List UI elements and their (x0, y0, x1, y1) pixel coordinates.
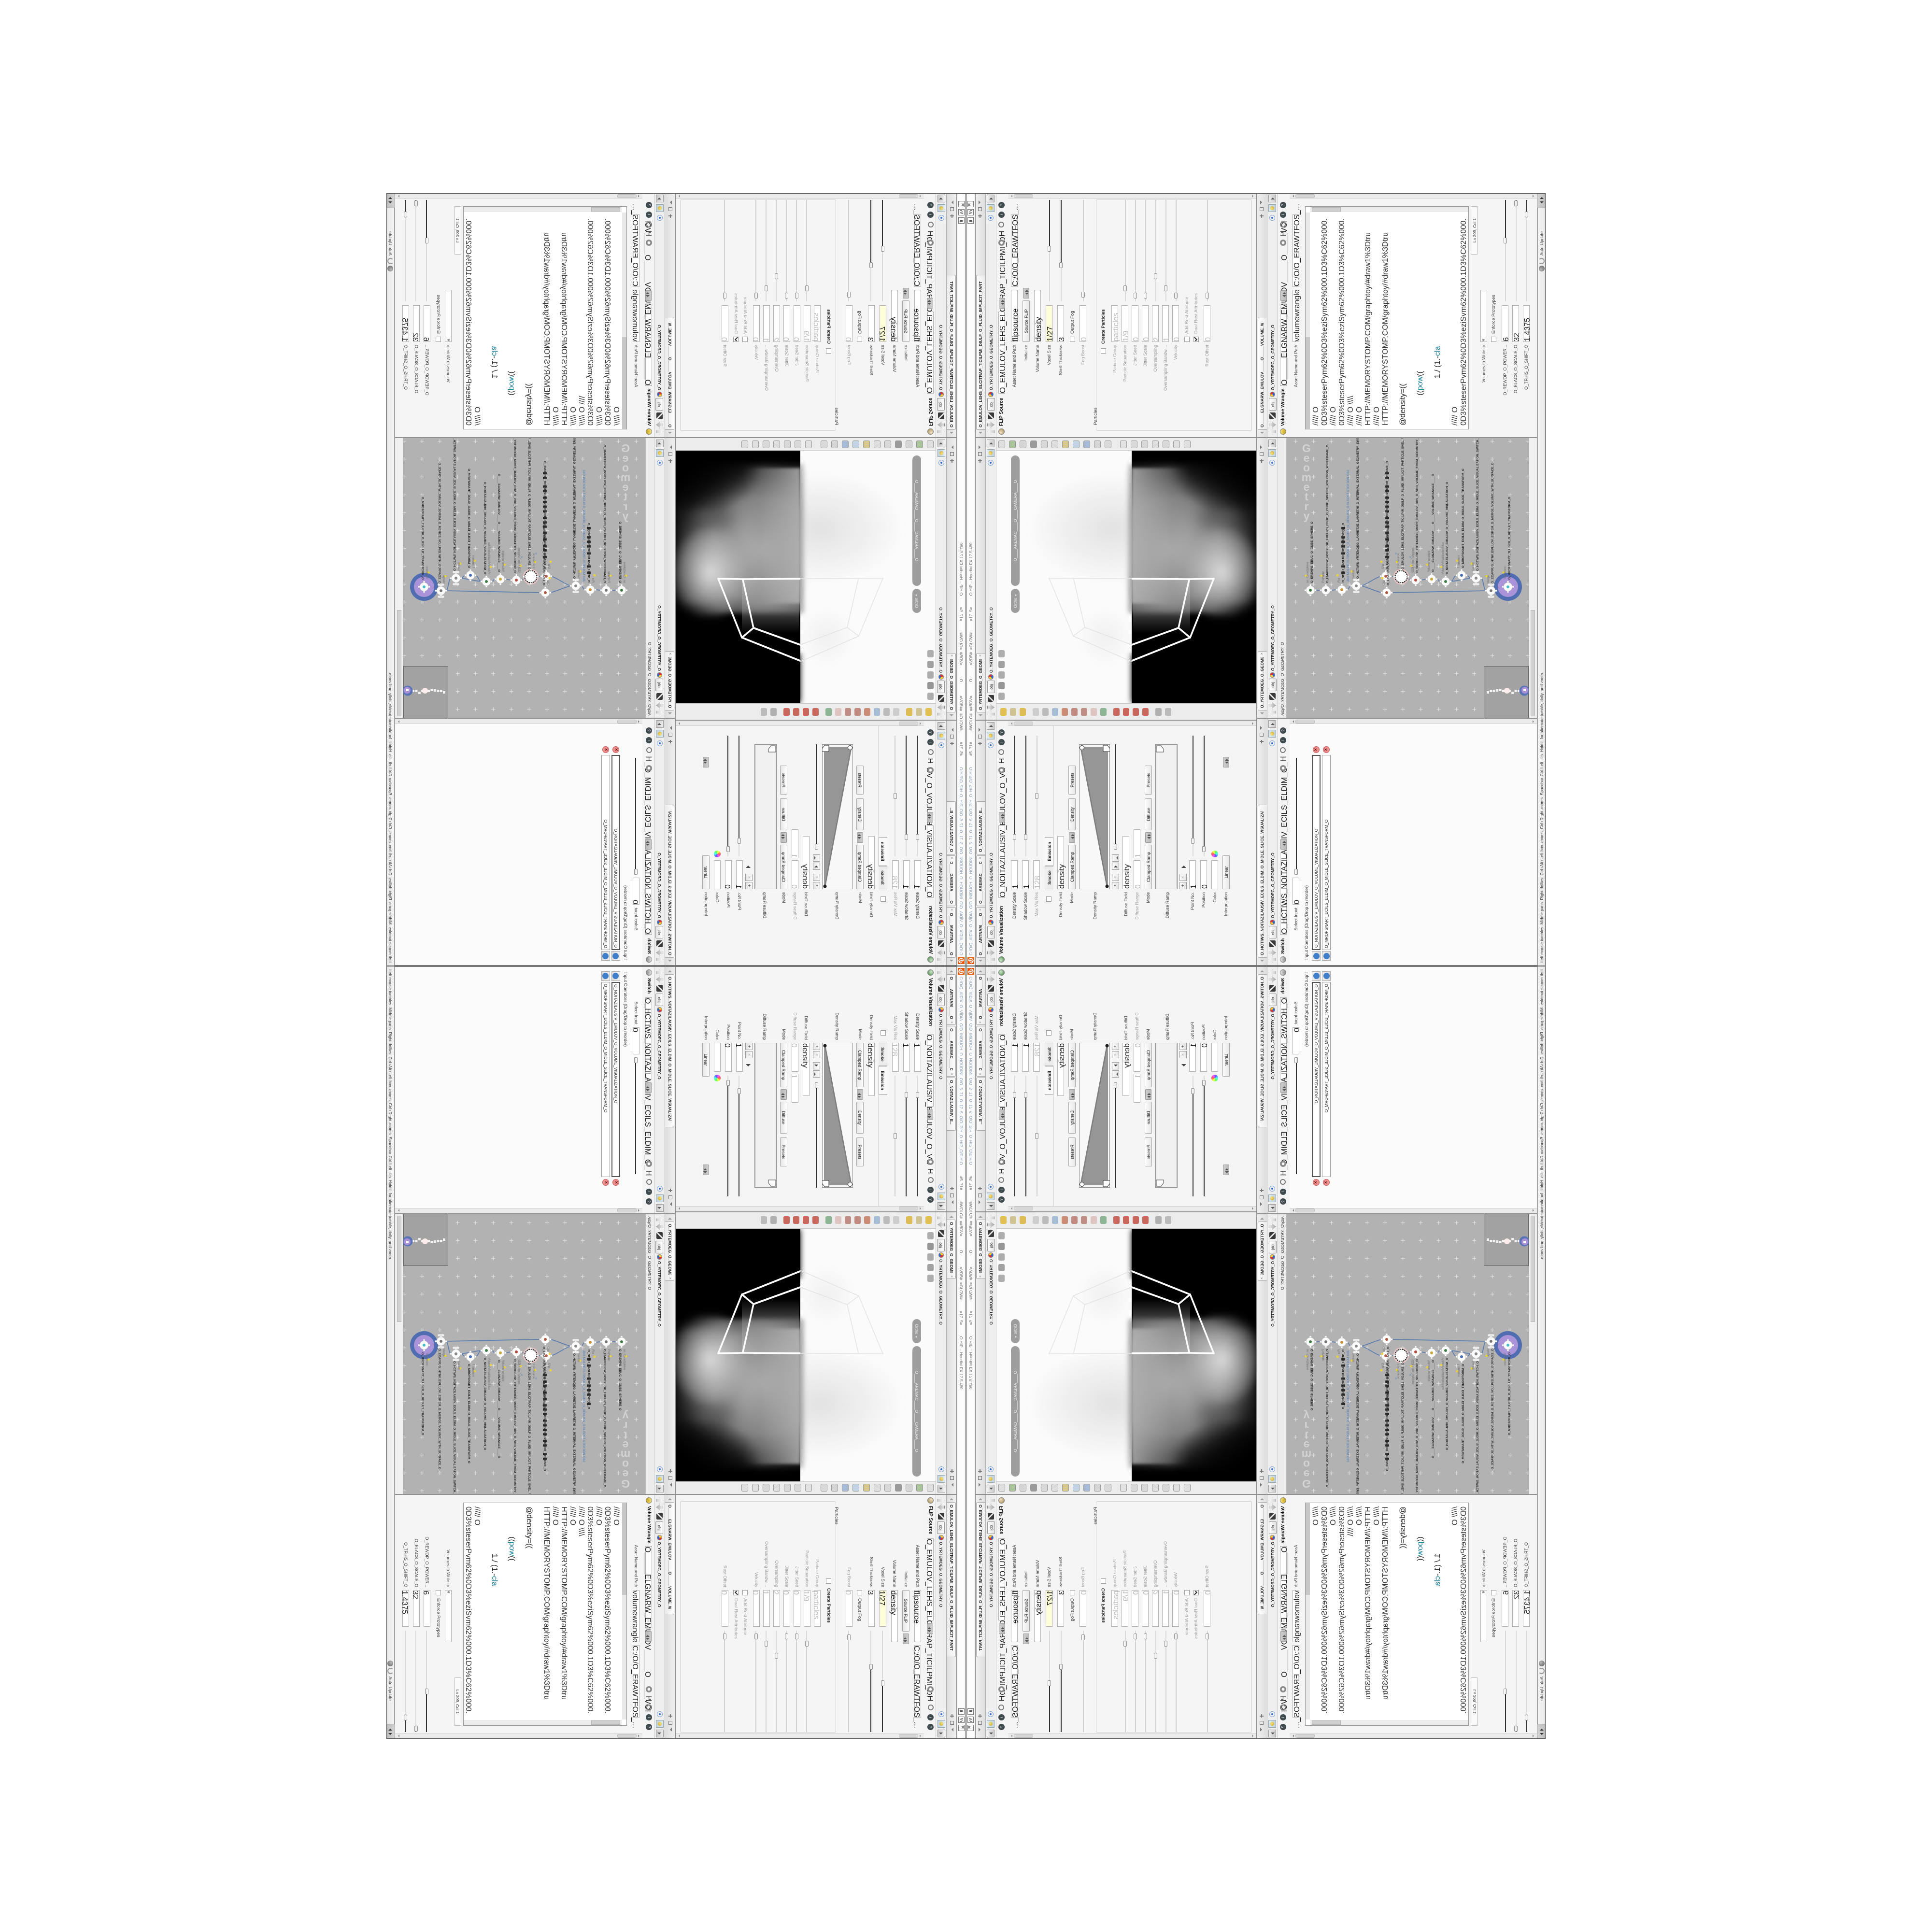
svg-text:O_ECAFRUS_PILC_O_CLIP_SURFACE_: O_ECAFRUS_PILC_O_CLIP_SURFACE_O (542, 1347, 545, 1409)
svg-text:Clip: Clip (547, 1363, 550, 1368)
svg-text:O_NC█U_█ASLRB█BO█G█N█SOQ█_O: O_NC█U_█ASLRB█BO█G█N█SOQ█_O (587, 1350, 591, 1409)
svg-text:O____ELGNARW_EMULOV____O____VO: O____ELGNARW_EMULOV____O____VOLUME_WRANG… (497, 474, 500, 572)
svg-text:O_EREHPS_EBUC_O_CUBE_SPHERE_O: O_EREHPS_EBUC_O_CUBE_SPHERE_O (618, 522, 622, 583)
svg-text:Switch: Switch (577, 1353, 580, 1362)
svg-text:Transform: Transform (425, 1352, 428, 1365)
svg-text:O_HCTIWS_YRTEMOEG_LANRETXE_LAN: O_HCTIWS_YRTEMOEG_LANRETXE_LANRETNI_O_IN… (572, 438, 576, 579)
svg-text:Switch: Switch (1472, 562, 1475, 571)
svg-text:Clip: Clip (1383, 580, 1386, 585)
svg-text:O_SNOGILOP_YRTEMOEG_MORF_EMULO: O_SNOGILOP_YRTEMOEG_MORF_EMULOV_BDV_O_VD… (1416, 1359, 1419, 1494)
svg-text:O_EREHPS_EBUC_O_CUBE_SPHERE_O: O_EREHPS_EBUC_O_CUBE_SPHERE_O (1310, 1349, 1314, 1410)
svg-text:an_CubeSphere: an_CubeSphere (623, 1349, 625, 1370)
svg-text:Clip: Clip (1382, 564, 1385, 569)
svg-text:Merge: Merge (1487, 575, 1490, 583)
svg-text:O_HCTIWS_NOITAZILAUSIV_ECILS_E: O_HCTIWS_NOITAZILAUSIV_ECILS_ELDIM_O_MID… (1476, 438, 1479, 571)
svg-text:Volume Wrangle: Volume Wrangle (501, 1360, 504, 1382)
svg-text:O_HCTIWS_NOITAZILAUSIV_ECILS_E: O_HCTIWS_NOITAZILAUSIV_ECILS_ELDIM_O_MID… (453, 1361, 456, 1494)
svg-text:O_NOITAZILAUSIV_EMULOV_O_VOLUM: O_NOITAZILAUSIV_EMULOV_O_VOLUME_VISUALIZ… (483, 482, 486, 574)
svg-text:O_EMARFERIW_NOGYLOP_EREHPS_EBU: O_EMARFERIW_NOGYLOP_EREHPS_EBUC_O_CUBE_S… (603, 1349, 606, 1487)
svg-text:VolumeVisualizationSlice: VolumeVisualizationSlice (487, 542, 490, 574)
svg-text:Clip: Clip (1382, 1363, 1385, 1368)
svg-text:O_MROFSNART_ECILS_ELDIM_O_MIDL: O_MROFSNART_ECILS_ELDIM_O_MIDLE_SLICE_TR… (467, 1364, 470, 1463)
svg-text:O_EMULOV_LEHS_ELCITRAP_TICILPM: O_EMULOV_LEHS_ELCITRAP_TICILPMI_DIULF_O_… (1401, 438, 1405, 569)
svg-text:O_ECAFRUS_HTIW_EMULOV_EGREM_O_: O_ECAFRUS_HTIW_EMULOV_EGREM_O_MERGE_VOLU… (438, 463, 441, 583)
svg-text:O_MROFSNART_ECILS_ELDIM_O_MIDL: O_MROFSNART_ECILS_ELDIM_O_MIDLE_SLICE_TR… (1462, 469, 1465, 568)
svg-text:VDB from Polygons: VDB from Polygons (517, 1359, 520, 1384)
svg-text:VolumeVisualizationSlice: VolumeVisualizationSlice (487, 1358, 490, 1390)
svg-text:O_EMARFERIW_NOGYLOP_EREHPS_EBU: O_EMARFERIW_NOGYLOP_EREHPS_EBUC_O_CUBE_S… (603, 445, 606, 583)
svg-text:O_HCTIWS_YRTEMOEG_LANRETXE_LAN: O_HCTIWS_YRTEMOEG_LANRETXE_LANRETNI_O_IN… (572, 1353, 576, 1494)
svg-text:an_CubeSphere: an_CubeSphere (1307, 1349, 1309, 1370)
svg-text:Volume Wrangle: Volume Wrangle (1428, 550, 1431, 572)
svg-text:Switch: Switch (1472, 1361, 1475, 1370)
svg-text:O_EMARFERIW_NOGYLOP_EREHPS_EBU: O_EMARFERIW_NOGYLOP_EREHPS_EBUC_O_CUBE_S… (1326, 445, 1329, 583)
svg-text:O_ECAFRUS_HTIW_EMULOV_EGREM_O_: O_ECAFRUS_HTIW_EMULOV_EGREM_O_MERGE_VOLU… (1491, 463, 1494, 583)
svg-text:O_NC█U_█ASLRB█BO█G█N█SOQ█_O: O_NC█U_█ASLRB█BO█G█N█SOQ█_O (587, 523, 591, 582)
svg-text:JBO.ND3.PETS.TRPOLS_O_SSURG_O_: JBO.ND3.PETS.TRPOLS_O_SSURG_O_GENUSS_O.S… (1347, 1350, 1350, 1462)
svg-text:O_NC█U_█ASLRB█BO█G█N█SOQ█_O: O_NC█U_█ASLRB█BO█G█N█SOQ█_O (1341, 523, 1345, 582)
svg-text:O_SNOGILOP_YRTEMOEG_MORF_EMULO: O_SNOGILOP_YRTEMOEG_MORF_EMULOV_BDV_O_VD… (1416, 438, 1419, 573)
svg-text:an_CubeSphere: an_CubeSphere (1307, 562, 1309, 583)
svg-text:VDB from Polygons: VDB from Polygons (1412, 548, 1415, 573)
svg-text:PolyWire: PolyWire (1322, 571, 1325, 583)
svg-text:Transform: Transform (1504, 1352, 1507, 1365)
svg-text:O_EMARFERIW_NOGYLOP_EREHPS_EBU: O_EMARFERIW_NOGYLOP_EREHPS_EBUC_O_CUBE_S… (1326, 1349, 1329, 1487)
svg-text:PolyWire: PolyWire (607, 1349, 610, 1361)
svg-text:O_NC█U_█ASLRB█BO█G█N█SOQ█_O: O_NC█U_█ASLRB█BO█G█N█SOQ█_O (1341, 1350, 1345, 1409)
svg-text:JBO.ND3.PETS.TRPOLS_O_SSURG_O_: JBO.ND3.PETS.TRPOLS_O_SSURG_O_GENUSS_O.S… (582, 1350, 585, 1462)
svg-text:O_MROFSNART_TLUSER_O_RESULT_TR: O_MROFSNART_TLUSER_O_RESULT_TRANSFORM_O (421, 1352, 424, 1435)
svg-text:O_MROFSNART_TLUSER_O_RESULT_TR: O_MROFSNART_TLUSER_O_RESULT_TRANSFORM_O (1508, 497, 1511, 580)
svg-text:FLIP Source: FLIP Source (1397, 553, 1400, 569)
svg-text:JBO.ND3.PETS.TRPOLS_O_SSURG_O_: JBO.ND3.PETS.TRPOLS_O_SSURG_O_GENUSS_O.S… (582, 470, 585, 582)
svg-text:Merge: Merge (442, 575, 445, 583)
svg-text:File: File (1338, 578, 1341, 582)
svg-text:VDB from Polygons: VDB from Polygons (1412, 1359, 1415, 1384)
svg-text:Switch: Switch (457, 1361, 460, 1370)
svg-text:O_HCTIWS_YRTEMOEG_LANRETXE_LAN: O_HCTIWS_YRTEMOEG_LANRETXE_LANRETNI_O_IN… (1356, 438, 1360, 579)
svg-text:Clip: Clip (547, 564, 550, 569)
svg-text:Transform: Transform (1458, 555, 1461, 568)
svg-text:O____ELGNARW_EMULOV____O____VO: O____ELGNARW_EMULOV____O____VOLUME_WRANG… (1432, 474, 1435, 572)
svg-text:Transform: Transform (471, 555, 474, 568)
svg-text:Clip: Clip (546, 580, 549, 585)
svg-text:O_ECAFRUS_PILC_O_CLIP_SURFACE_: O_ECAFRUS_PILC_O_CLIP_SURFACE_O (542, 523, 545, 585)
svg-text:O_ECAFRUS_PILC_O_CLIP_SURFACE_: O_ECAFRUS_PILC_O_CLIP_SURFACE_O (1387, 523, 1390, 585)
svg-text:O_MROFSNART_ECILS_ELDIM_O_MIDL: O_MROFSNART_ECILS_ELDIM_O_MIDLE_SLICE_TR… (1462, 1364, 1465, 1463)
svg-text:O_EMULOV_LEHS_ELCITRAP_TICILPM: O_EMULOV_LEHS_ELCITRAP_TICILPMI_DIULF_O_… (527, 1363, 531, 1494)
svg-text:Clip: Clip (546, 1347, 549, 1352)
svg-text:O_MROFSNART_TLUSER_O_RESULT_TR: O_MROFSNART_TLUSER_O_RESULT_TRANSFORM_O (421, 497, 424, 580)
svg-text:VolumeVisualizationSlice: VolumeVisualizationSlice (1442, 542, 1445, 574)
svg-text:O_HCTIWS_NOITAZILAUSIV_ECILS_E: O_HCTIWS_NOITAZILAUSIV_ECILS_ELDIM_O_MID… (453, 438, 456, 571)
svg-text:Volume Wrangle: Volume Wrangle (501, 550, 504, 572)
svg-text:O_EREHPS_EBUC_O_CUBE_SPHERE_O: O_EREHPS_EBUC_O_CUBE_SPHERE_O (1310, 522, 1314, 583)
svg-text:O_ECAFRUS_HTIW_EMULOV_EGREM_O_: O_ECAFRUS_HTIW_EMULOV_EGREM_O_MERGE_VOLU… (1491, 1349, 1494, 1469)
svg-text:O_HCTIWS_NOITAZILAUSIV_ECILS_E: O_HCTIWS_NOITAZILAUSIV_ECILS_ELDIM_O_MID… (1476, 1361, 1479, 1494)
svg-text:Transform: Transform (1458, 1364, 1461, 1377)
svg-text:O_ECAFRUS_PILC_O_CLIP_SURFACE_: O_ECAFRUS_PILC_O_CLIP_SURFACE_O (1387, 1347, 1390, 1409)
svg-text:FLIP Source: FLIP Source (532, 553, 535, 569)
svg-text:Transform: Transform (1504, 567, 1507, 580)
svg-text:O_HCTIWS_YRTEMOEG_LANRETXE_LAN: O_HCTIWS_YRTEMOEG_LANRETXE_LANRETNI_O_IN… (1356, 1353, 1360, 1494)
svg-text:O_NOITAZILAUSIV_EMULOV_O_VOLUM: O_NOITAZILAUSIV_EMULOV_O_VOLUME_VISUALIZ… (1446, 1358, 1449, 1450)
svg-text:O_EMULOV_LEHS_ELCITRAP_TICILPM: O_EMULOV_LEHS_ELCITRAP_TICILPMI_DIULF_O_… (1401, 1363, 1405, 1494)
svg-text:Clip: Clip (1383, 1347, 1386, 1352)
svg-text:O_ECAFRUS_HTIW_EMULOV_EGREM_O_: O_ECAFRUS_HTIW_EMULOV_EGREM_O_MERGE_VOLU… (438, 1349, 441, 1469)
svg-text:Merge: Merge (442, 1349, 445, 1357)
svg-text:O_SNOGILOP_YRTEMOEG_MORF_EMULO: O_SNOGILOP_YRTEMOEG_MORF_EMULOV_BDV_O_VD… (513, 1359, 516, 1494)
svg-text:Transform: Transform (471, 1364, 474, 1377)
svg-text:O_EREHPS_EBUC_O_CUBE_SPHERE_O: O_EREHPS_EBUC_O_CUBE_SPHERE_O (618, 1349, 622, 1410)
svg-text:File: File (1338, 1350, 1341, 1354)
svg-text:VolumeVisualizationSlice: VolumeVisualizationSlice (1442, 1358, 1445, 1390)
svg-text:Switch: Switch (457, 562, 460, 571)
svg-text:Switch: Switch (1352, 1353, 1355, 1362)
svg-text:FLIP Source: FLIP Source (1397, 1363, 1400, 1379)
svg-text:Transform: Transform (425, 567, 428, 580)
svg-text:FLIP Source: FLIP Source (532, 1363, 535, 1379)
svg-text:PolyWire: PolyWire (607, 571, 610, 583)
svg-text:File: File (591, 1350, 594, 1354)
svg-text:Switch: Switch (1352, 570, 1355, 579)
svg-text:O_MROFSNART_TLUSER_O_RESULT_TR: O_MROFSNART_TLUSER_O_RESULT_TRANSFORM_O (1508, 1352, 1511, 1435)
svg-text:O____ELGNARW_EMULOV____O____VO: O____ELGNARW_EMULOV____O____VOLUME_WRANG… (497, 1360, 500, 1458)
svg-text:O_EMULOV_LEHS_ELCITRAP_TICILPM: O_EMULOV_LEHS_ELCITRAP_TICILPMI_DIULF_O_… (527, 438, 531, 569)
svg-text:Volume Wrangle: Volume Wrangle (1428, 1360, 1431, 1382)
svg-text:PolyWire: PolyWire (1322, 1349, 1325, 1361)
svg-text:Switch: Switch (577, 570, 580, 579)
svg-text:JBO.ND3.PETS.TRPOLS_O_SSURG_O_: JBO.ND3.PETS.TRPOLS_O_SSURG_O_GENUSS_O.S… (1347, 470, 1350, 582)
svg-text:O_SNOGILOP_YRTEMOEG_MORF_EMULO: O_SNOGILOP_YRTEMOEG_MORF_EMULOV_BDV_O_VD… (513, 438, 516, 573)
svg-text:File: File (591, 578, 594, 582)
svg-text:an_CubeSphere: an_CubeSphere (623, 562, 625, 583)
svg-text:O_MROFSNART_ECILS_ELDIM_O_MIDL: O_MROFSNART_ECILS_ELDIM_O_MIDLE_SLICE_TR… (467, 469, 470, 568)
svg-text:Merge: Merge (1487, 1349, 1490, 1357)
svg-text:VDB from Polygons: VDB from Polygons (517, 548, 520, 573)
svg-text:O_NOITAZILAUSIV_EMULOV_O_VOLUM: O_NOITAZILAUSIV_EMULOV_O_VOLUME_VISUALIZ… (483, 1358, 486, 1450)
svg-text:O_NOITAZILAUSIV_EMULOV_O_VOLUM: O_NOITAZILAUSIV_EMULOV_O_VOLUME_VISUALIZ… (1446, 482, 1449, 574)
svg-text:O____ELGNARW_EMULOV____O____VO: O____ELGNARW_EMULOV____O____VOLUME_WRANG… (1432, 1360, 1435, 1458)
